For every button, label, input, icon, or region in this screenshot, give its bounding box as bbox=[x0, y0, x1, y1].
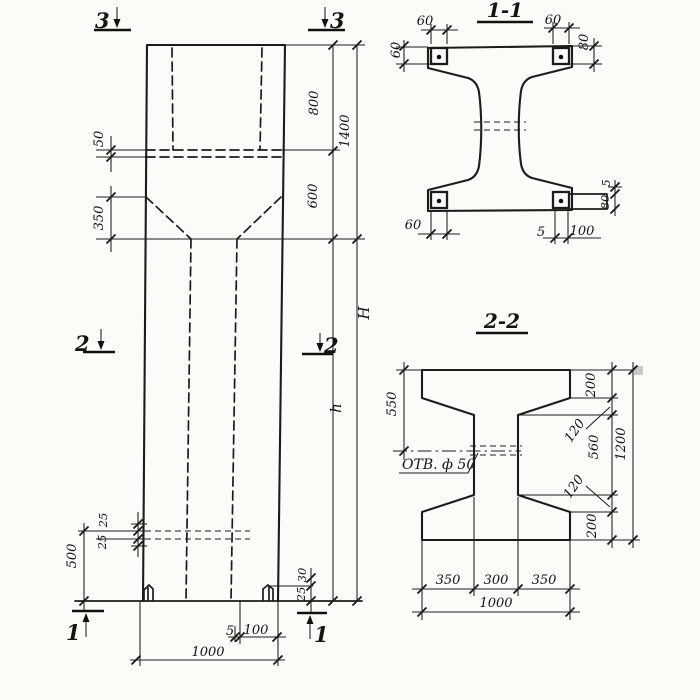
dim-800: 800 bbox=[307, 91, 322, 116]
dimension-ticks bbox=[80, 24, 638, 665]
technical-drawing-canvas: 50 350 25 25 500 30 25 5 100 1000 800 60… bbox=[0, 0, 700, 700]
dim-1-1-plate-5: 5 bbox=[599, 179, 613, 186]
section-1-1-title: 1-1 bbox=[487, 0, 523, 22]
dim-1-1-tl-60v: 60 bbox=[389, 42, 404, 59]
dim-2-2-200-bottom: 200 bbox=[585, 514, 600, 540]
column-outline bbox=[143, 45, 285, 601]
dim-gap-5: 5 bbox=[226, 624, 234, 639]
section-marker-arrows bbox=[83, 19, 329, 624]
dim-2-2-200-top: 200 bbox=[584, 373, 599, 399]
web-hidden-edges bbox=[186, 239, 237, 601]
ledge-hidden bbox=[146, 150, 281, 157]
section-2-2-title: 2-2 bbox=[483, 309, 520, 333]
hole-hidden-lines bbox=[145, 531, 250, 539]
dim-h: h bbox=[327, 403, 345, 413]
dim-2-2-1200: 1200 bbox=[614, 427, 629, 460]
right-key bbox=[263, 585, 273, 601]
dim-1-1-bottom-5: 5 bbox=[537, 225, 545, 240]
dim-key-30: 30 bbox=[295, 568, 309, 583]
dim-2-2-350-right: 350 bbox=[532, 573, 557, 588]
ledge-extension bbox=[96, 150, 146, 157]
dim-1-1-tl-60: 60 bbox=[417, 14, 434, 29]
dim-hole-lower-25: 25 bbox=[95, 535, 109, 551]
section-2-2-view: 2-2 ОТВ. ф 50 550 200 120 560 120 200 12… bbox=[385, 309, 643, 620]
dim-taper-350: 350 bbox=[92, 206, 107, 231]
dim-1-1-tr-60: 60 bbox=[545, 13, 562, 28]
section-marker-3-left: 3 bbox=[94, 7, 131, 33]
dim-600: 600 bbox=[306, 184, 321, 209]
dim-ledge-50: 50 bbox=[92, 131, 107, 148]
hole-callout: ОТВ. ф 50 bbox=[399, 453, 478, 473]
section-marker-1-right: 1 bbox=[297, 613, 329, 647]
dim-hole-upper-25: 25 bbox=[96, 513, 110, 529]
section-marker-2-left: 2 bbox=[74, 329, 115, 356]
dim-1-1-tr-80: 80 bbox=[577, 34, 592, 51]
capital-hidden-edges bbox=[172, 48, 262, 150]
elevation-dim-lines bbox=[84, 45, 365, 666]
dim-1-1-bl-60: 60 bbox=[405, 218, 422, 233]
dim-key-25: 25 bbox=[294, 587, 308, 603]
dim-2-2-550: 550 bbox=[385, 392, 400, 417]
dim-2-2-120-top: 120 bbox=[562, 417, 589, 446]
hole-label: ОТВ. ф 50 bbox=[402, 457, 475, 473]
dim-H: H bbox=[355, 306, 373, 321]
dim-2-2-560: 560 bbox=[587, 435, 602, 460]
left-key bbox=[144, 585, 153, 601]
marker-1-left-label: 1 bbox=[66, 620, 81, 645]
dim-2-2-350-left: 350 bbox=[436, 573, 461, 588]
dim-1-1-bottom-100: 100 bbox=[570, 224, 595, 239]
marker-1-right-label: 1 bbox=[314, 622, 329, 647]
dim-2-2-300: 300 bbox=[484, 573, 509, 588]
taper-hidden bbox=[146, 197, 281, 239]
dim-2-2-120-bottom: 120 bbox=[561, 473, 588, 502]
dim-1400: 1400 bbox=[338, 114, 353, 147]
section-1-1-view: 1-1 60 60 60 80 60 5 80 5 100 bbox=[389, 0, 622, 244]
dim-500: 500 bbox=[65, 544, 80, 569]
dim-width-1000: 1000 bbox=[191, 645, 224, 660]
elevation-view: 50 350 25 25 500 30 25 5 100 1000 800 60… bbox=[65, 7, 373, 666]
dim-2-2-1000: 1000 bbox=[479, 596, 512, 611]
dim-plate-100: 100 bbox=[244, 623, 269, 638]
dim-1-1-plate-80: 80 bbox=[598, 195, 612, 210]
section-1-1-outline bbox=[428, 46, 572, 211]
drawing-sheet: 50 350 25 25 500 30 25 5 100 1000 800 60… bbox=[0, 0, 700, 700]
taper-extensions bbox=[96, 197, 365, 239]
